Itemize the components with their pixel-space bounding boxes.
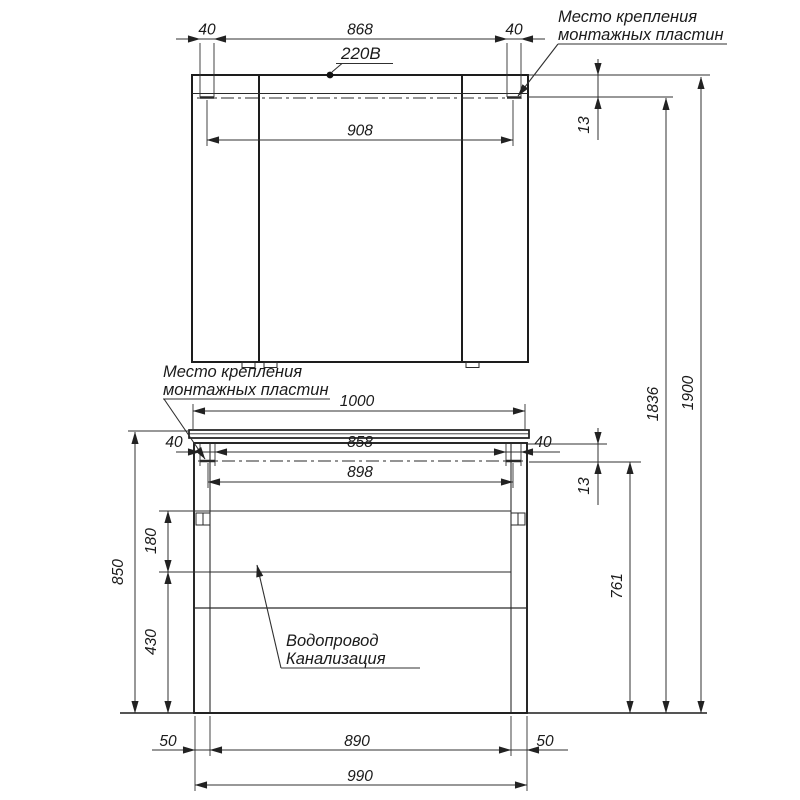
dim-top-offset-left: 40 [198,22,216,39]
dim-clearance-height: 430 [143,629,160,655]
dim-vanity-plate-height: 761 [609,573,626,599]
drawing-svg: 40 868 40 220В Место крепления монтажных… [0,0,800,800]
dim-mid-offset-right: 40 [534,434,552,451]
dimension-lines [135,39,701,785]
mirror-cabinet [192,75,528,368]
dim-mirror-plate-inset: 13 [576,116,593,134]
mount-mid-label-line2: монтажных пластин [163,381,329,399]
power-point-dot [327,72,334,79]
dim-vanity-height: 850 [110,559,127,585]
leader-lines [163,44,727,668]
dim-top-span: 868 [347,22,373,39]
mount-mid-label-line1: Место крепления [163,363,302,381]
utilities-label-line2: Канализация [286,650,386,668]
mount-top-label-line2: монтажных пластин [558,26,724,44]
furniture-installation-drawing: 40 868 40 220В Место крепления монтажных… [0,0,800,800]
extension-lines [128,43,710,791]
dim-countertop-width: 1000 [340,393,375,410]
dim-vanity-plate-span: 898 [347,464,373,481]
dim-total-height: 1900 [680,375,697,410]
vanity-body [194,443,527,713]
vanity-side-mounting-plates [196,513,525,525]
utilities-hatch-zone [210,511,511,572]
dim-top-offset-right: 40 [505,22,523,39]
dim-mirror-plate-height: 1836 [645,386,662,421]
dim-mid-offset-left: 40 [165,434,183,451]
power-label: 220В [340,44,381,63]
dim-base-span: 890 [344,733,370,750]
dim-base-offset-left: 50 [159,733,177,750]
dim-mid-span: 858 [347,434,373,451]
dim-mirror-plate-span: 908 [347,123,373,140]
utilities-label-line1: Водопровод [286,632,378,650]
dim-base-offset-right: 50 [536,733,554,750]
dim-base-width: 990 [347,768,373,785]
mount-top-label-line1: Место крепления [558,8,697,26]
dim-utility-zone-height: 180 [143,528,160,554]
dim-vanity-plate-inset: 13 [576,477,593,495]
